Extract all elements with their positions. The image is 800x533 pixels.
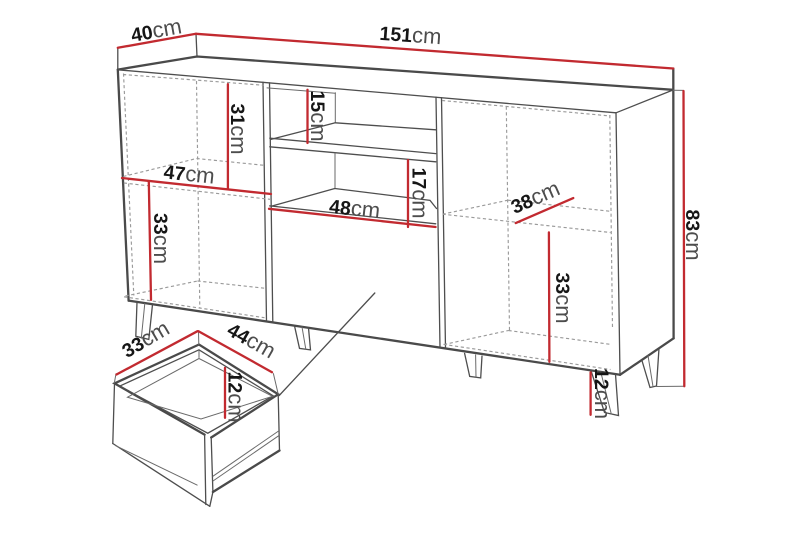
svg-text:15cm: 15cm — [306, 90, 331, 141]
svg-text:12cm: 12cm — [590, 368, 615, 419]
svg-text:151cm: 151cm — [379, 20, 443, 49]
svg-text:17cm: 17cm — [408, 167, 433, 218]
svg-text:83cm: 83cm — [681, 209, 706, 260]
svg-text:33cm: 33cm — [149, 213, 174, 264]
svg-text:33cm: 33cm — [551, 272, 576, 323]
svg-text:31cm: 31cm — [226, 103, 251, 154]
svg-text:12cm: 12cm — [224, 371, 249, 422]
